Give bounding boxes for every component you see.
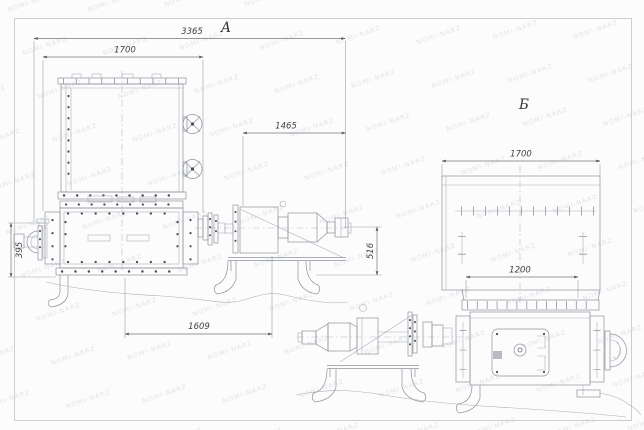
svg-text:1700: 1700: [510, 150, 532, 160]
view-a-label: A: [219, 20, 231, 36]
watermark-layer: [0, 0, 644, 430]
technical-drawing: NOMI-NARZ NOMI-NARZ A 3365 1700 1465: [0, 0, 644, 430]
svg-text:1465: 1465: [275, 122, 297, 132]
view-b-label: Б: [518, 97, 529, 113]
svg-text:395: 395: [15, 242, 25, 258]
drawing-sheet: NOMI-NARZ NOMI-NARZ A 3365 1700 1465: [0, 0, 644, 430]
svg-text:1609: 1609: [188, 322, 210, 332]
svg-text:1700: 1700: [114, 46, 136, 56]
svg-text:3365: 3365: [181, 27, 203, 37]
svg-text:516: 516: [366, 242, 376, 259]
